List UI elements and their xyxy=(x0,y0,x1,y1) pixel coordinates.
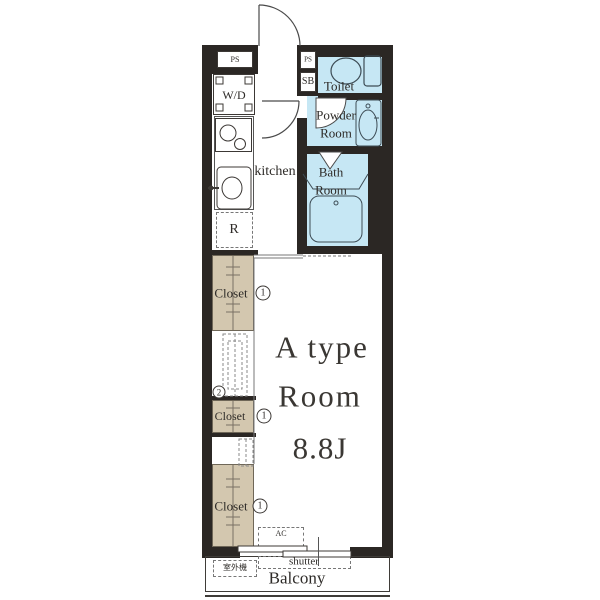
stove-burners-icon xyxy=(220,125,246,150)
shutter-label: shutter xyxy=(289,557,319,568)
air-conditioner-label: AC xyxy=(275,530,286,538)
ladder-number-text: 2 xyxy=(217,387,222,397)
closet-top-number: 1 xyxy=(256,286,271,301)
floor-plan: PS PS SB W/D Toilet Powder Room Bath Roo… xyxy=(0,0,600,600)
closet-bottom-number-text: 1 xyxy=(258,501,263,512)
closet-middle-label: Closet xyxy=(215,410,246,422)
powder-room-label-1: Powder xyxy=(316,109,356,122)
kitchen-sink-icon xyxy=(208,167,251,209)
kitchen-label: kitchen xyxy=(254,165,295,179)
closet-middle-number-text: 1 xyxy=(262,411,267,422)
closet-bottom-number: 1 xyxy=(253,499,268,514)
room-size-label: 8.8J xyxy=(293,433,348,464)
room-type-label-2: Room xyxy=(278,381,362,412)
ps-left-label: PS xyxy=(231,56,240,64)
shoe-box-label: SB xyxy=(302,77,314,87)
closet-top-label: Closet xyxy=(214,287,247,300)
loft-ladder-icon xyxy=(223,334,253,466)
powder-room-label-2: Room xyxy=(320,127,352,140)
outdoor-unit-label: 室外機 xyxy=(223,564,247,572)
hall-door-icon xyxy=(262,101,299,138)
plan-linework xyxy=(0,0,600,600)
closet-bottom-label: Closet xyxy=(214,500,247,513)
closet-middle-number: 1 xyxy=(257,409,272,424)
refrigerator-label: R xyxy=(229,223,238,237)
powder-sink-icon xyxy=(356,100,381,146)
closet-top-number-text: 1 xyxy=(261,288,266,299)
bath-room-label-1: Bath xyxy=(319,166,344,179)
ps-right-label: PS xyxy=(304,57,312,64)
ladder-number: 2 xyxy=(213,386,226,399)
entrance-door-icon xyxy=(259,5,300,46)
balcony-label: Balcony xyxy=(269,570,326,587)
washer-dryer-label: W/D xyxy=(222,89,245,101)
room-type-label-1: A type xyxy=(275,332,369,363)
bath-room-label-2: Room xyxy=(315,184,347,197)
toilet-label: Toilet xyxy=(324,80,354,93)
